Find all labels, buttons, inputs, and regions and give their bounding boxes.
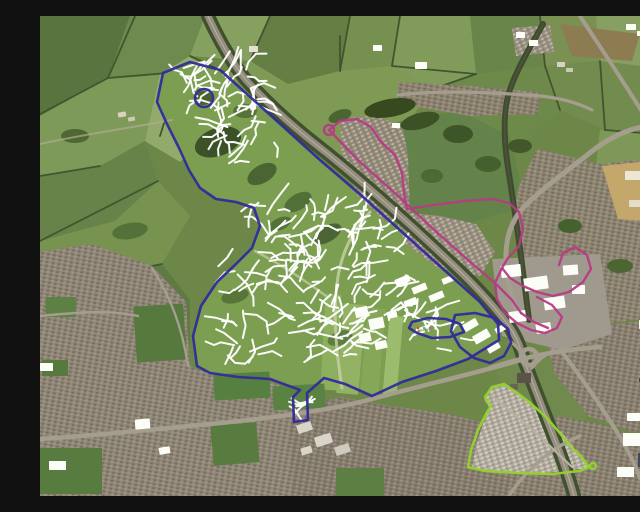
building xyxy=(629,200,640,207)
building xyxy=(566,68,573,72)
marker-dot xyxy=(417,327,419,329)
tree-clump xyxy=(443,125,473,143)
marker-dot xyxy=(423,327,425,329)
building xyxy=(557,62,565,67)
satellite-map xyxy=(40,16,640,496)
marker-dot xyxy=(420,329,422,331)
tree-clump xyxy=(421,169,443,183)
building xyxy=(249,46,258,52)
tree-clump xyxy=(607,259,633,273)
building xyxy=(415,62,427,69)
sports-pitch xyxy=(40,448,102,494)
tree-clump xyxy=(558,219,582,233)
building xyxy=(627,413,640,421)
building xyxy=(516,32,525,38)
tree-clump xyxy=(475,156,501,172)
building xyxy=(392,123,400,128)
building xyxy=(373,45,382,51)
building xyxy=(623,433,640,446)
building xyxy=(49,461,66,470)
building xyxy=(625,171,640,180)
building xyxy=(135,418,151,429)
tree-clump xyxy=(508,139,532,153)
building xyxy=(626,24,636,30)
building xyxy=(563,264,579,275)
marker-dot xyxy=(426,329,428,331)
building xyxy=(40,363,53,371)
building xyxy=(617,467,634,477)
sports-pitch xyxy=(336,468,384,496)
aerial-masterplan-screenshot xyxy=(40,16,640,496)
building xyxy=(517,373,531,383)
marker-dot xyxy=(429,327,431,329)
sports-pitch xyxy=(133,303,187,362)
building xyxy=(529,40,538,46)
sports-pitch xyxy=(210,422,259,466)
